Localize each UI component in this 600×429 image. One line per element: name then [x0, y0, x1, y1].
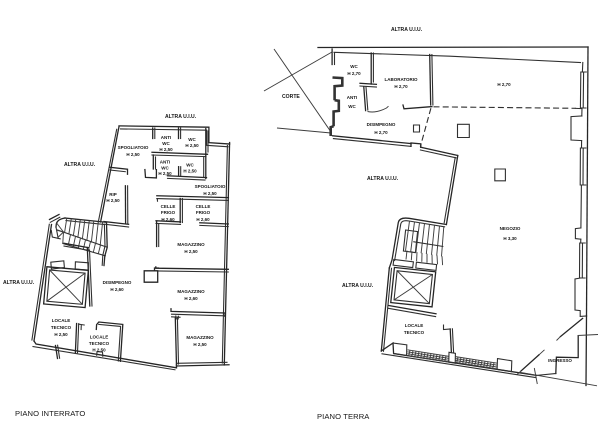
svg-text:H 2,60: H 2,60 — [184, 296, 198, 301]
svg-text:MAGAZZINO: MAGAZZINO — [186, 335, 214, 340]
svg-text:H 2,70: H 2,70 — [347, 71, 361, 76]
svg-text:H 2,50: H 2,50 — [54, 332, 68, 337]
svg-text:H 2,50: H 2,50 — [126, 152, 140, 157]
svg-text:PIANO INTERRATO: PIANO INTERRATO — [15, 409, 85, 418]
svg-text:ALTRA U.I.U.: ALTRA U.I.U. — [367, 176, 399, 182]
svg-text:ALTRA U.I.U.: ALTRA U.I.U. — [165, 114, 197, 120]
svg-text:LOCALE: LOCALE — [90, 335, 109, 340]
svg-text:DISIMPEGNO: DISIMPEGNO — [103, 280, 132, 285]
svg-text:PIANO TERRA: PIANO TERRA — [317, 412, 370, 421]
svg-text:H 2,50: H 2,50 — [203, 191, 217, 196]
svg-text:H 2,70: H 2,70 — [394, 84, 408, 89]
svg-text:SPOGLIATOIO: SPOGLIATOIO — [118, 145, 149, 150]
svg-text:ALTRA U.I.U.: ALTRA U.I.U. — [3, 280, 35, 286]
svg-text:DISIMPEGNO: DISIMPEGNO — [367, 122, 396, 127]
svg-text:ANTI: ANTI — [347, 95, 358, 100]
svg-text:WC: WC — [188, 137, 196, 142]
svg-text:CORTE: CORTE — [282, 94, 300, 100]
svg-text:WC: WC — [161, 166, 169, 171]
svg-text:WC: WC — [162, 141, 170, 146]
svg-text:MAGAZZINO: MAGAZZINO — [177, 242, 205, 247]
svg-text:H 2,50: H 2,50 — [159, 147, 173, 152]
svg-text:NEGOZIO: NEGOZIO — [500, 226, 521, 231]
svg-text:FRIGO: FRIGO — [196, 210, 211, 215]
svg-text:SPOGLIATOIO: SPOGLIATOIO — [195, 184, 226, 189]
svg-text:ALTRA U.I.U.: ALTRA U.I.U. — [342, 283, 374, 289]
svg-text:MAGAZZINO: MAGAZZINO — [177, 289, 205, 294]
svg-text:H 2,50: H 2,50 — [184, 249, 198, 254]
svg-text:H 2,60: H 2,60 — [161, 217, 175, 222]
svg-text:CELLE: CELLE — [196, 204, 211, 209]
svg-text:H 2,60: H 2,60 — [196, 217, 210, 222]
svg-text:H 2,60: H 2,60 — [110, 287, 124, 292]
svg-text:H 2,50: H 2,50 — [158, 171, 172, 176]
svg-text:ALTRA U.I.U.: ALTRA U.I.U. — [64, 162, 96, 168]
svg-text:H 3,30: H 3,30 — [503, 236, 517, 241]
svg-text:H 2,50: H 2,50 — [92, 348, 106, 353]
svg-text:H 2,50: H 2,50 — [106, 198, 120, 203]
svg-text:H 2,50: H 2,50 — [185, 143, 199, 148]
svg-text:LABORATORIO: LABORATORIO — [384, 77, 418, 82]
svg-text:H 2,50: H 2,50 — [183, 169, 197, 174]
svg-text:WC: WC — [186, 163, 194, 168]
svg-text:ANTI: ANTI — [161, 135, 172, 140]
svg-text:WC: WC — [348, 104, 356, 109]
svg-text:FRIGO: FRIGO — [161, 210, 176, 215]
svg-text:ANTI: ANTI — [160, 160, 171, 165]
svg-text:ALTRA U.I.U.: ALTRA U.I.U. — [391, 27, 423, 33]
svg-text:LOCALE: LOCALE — [52, 318, 71, 323]
svg-text:RIP: RIP — [109, 192, 117, 197]
svg-text:INGRESSO: INGRESSO — [548, 358, 572, 363]
svg-text:H 2,70: H 2,70 — [497, 82, 511, 87]
svg-text:CELLE: CELLE — [161, 204, 176, 209]
svg-text:H 2,50: H 2,50 — [193, 342, 207, 347]
svg-text:TECNICO: TECNICO — [51, 325, 72, 330]
svg-text:H 2,70: H 2,70 — [374, 130, 388, 135]
svg-text:WC: WC — [350, 64, 358, 69]
svg-text:TECNICO: TECNICO — [404, 330, 425, 335]
svg-text:TECNICO: TECNICO — [89, 341, 110, 346]
svg-text:LOCALE: LOCALE — [405, 323, 424, 328]
